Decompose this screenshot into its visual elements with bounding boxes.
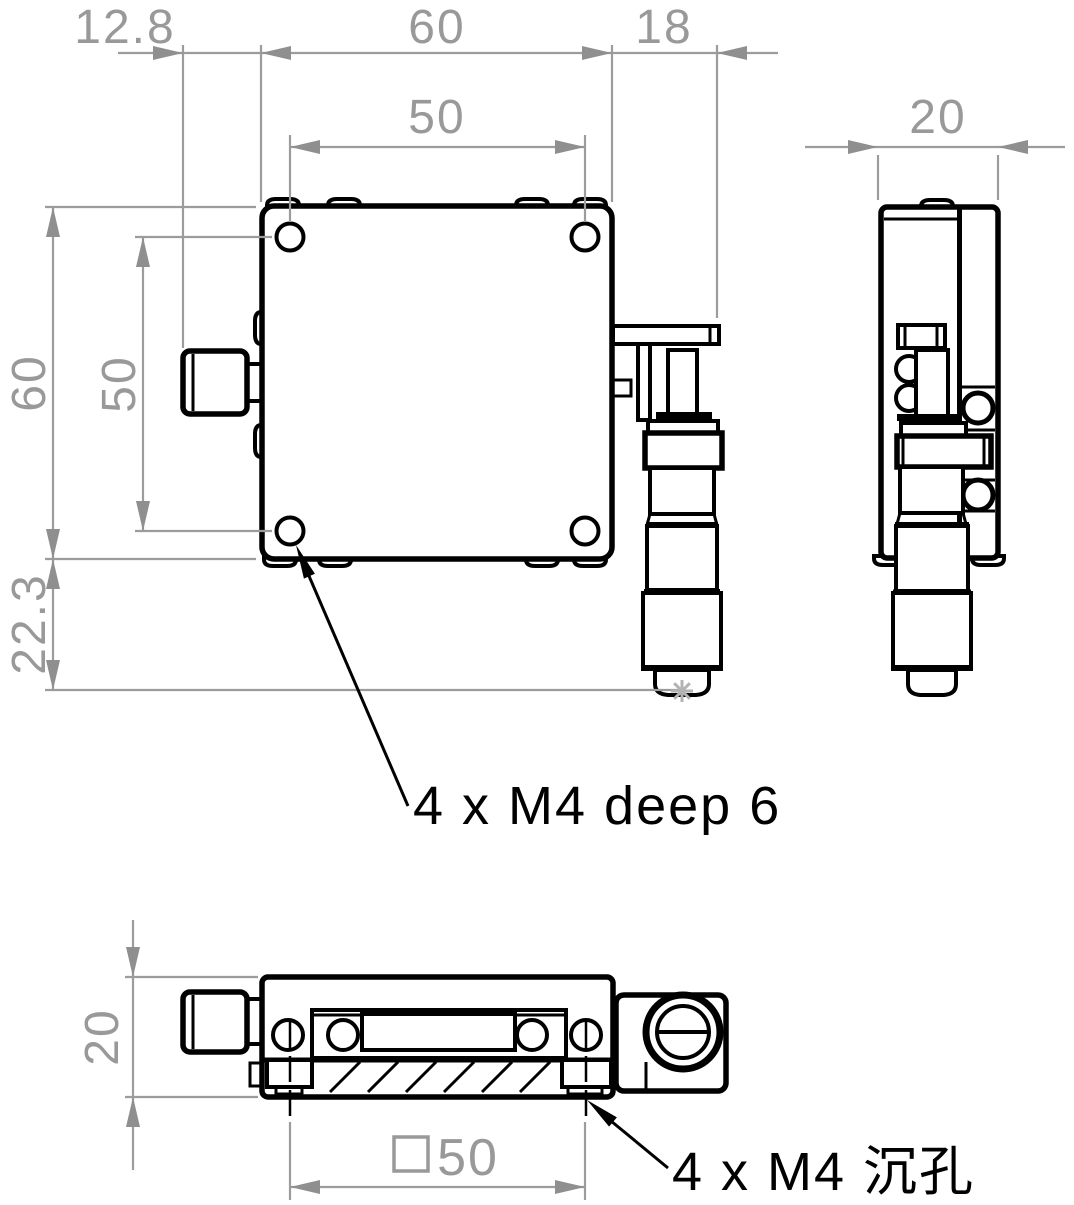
micrometer-head: [641, 350, 723, 695]
dim-bracket-extent: 18: [635, 1, 692, 54]
stage-body-top: [262, 206, 612, 559]
side-view: [874, 200, 1004, 695]
annotations: 4 x M4 deep 6 4 x M4 沉孔: [296, 545, 975, 1202]
technical-drawing: 12.8 60 18 50 20 60 50: [0, 0, 1074, 1205]
dim-hole-spacing-h: 50: [408, 91, 465, 144]
front-lock-knob: [183, 992, 265, 1086]
dim-left-offset: 12.8: [74, 1, 175, 54]
side-bracket: [898, 325, 945, 348]
dim-hole-spacing-v: 50: [93, 355, 146, 412]
annotation-tapped-holes: 4 x M4 deep 6: [413, 776, 781, 836]
dim-base-height: 20: [76, 1008, 129, 1065]
top-view: [183, 199, 723, 695]
dim-mount-spacing: 50: [437, 1129, 499, 1187]
dim-body-width: 60: [408, 1, 465, 54]
annotation-counterbore-holes: 4 x M4 沉孔: [672, 1142, 975, 1202]
technical-drawing-page: 12.8 60 18 50 20 60 50: [0, 0, 1074, 1205]
dim-tip-offset: 22.3: [3, 573, 56, 674]
square-symbol: [394, 1137, 428, 1171]
front-micrometer-end: [616, 995, 726, 1091]
dim-body-height: 60: [3, 354, 56, 411]
tip-reference-star: [671, 680, 693, 702]
front-view: [183, 977, 726, 1118]
lock-knob: [183, 351, 265, 414]
slide-rail: [312, 1010, 566, 1058]
dim-side-width: 20: [909, 91, 966, 144]
